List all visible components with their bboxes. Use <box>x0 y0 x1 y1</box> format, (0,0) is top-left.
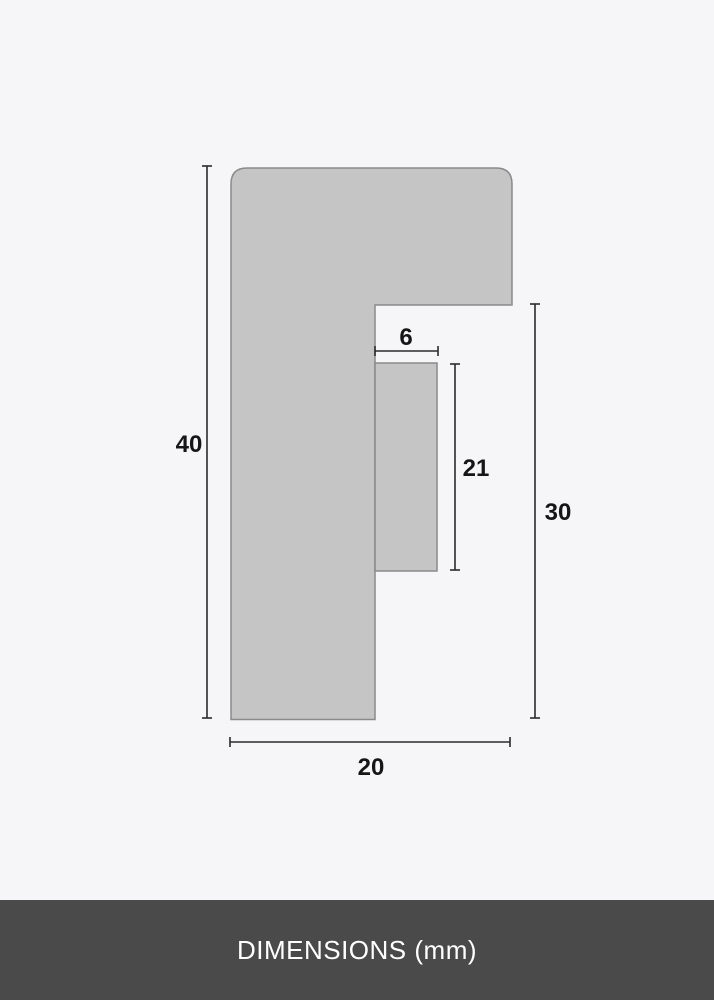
dim-label-inner-height: 30 <box>545 499 572 526</box>
dim-line-height-40 <box>202 166 212 718</box>
dim-label-rabbet-height: 21 <box>463 455 490 482</box>
dimensions-footer: DIMENSIONS (mm) <box>0 900 714 1000</box>
dim-label-height: 40 <box>176 431 203 458</box>
frame-profile-diagram: 40 6 21 30 20 <box>0 0 714 900</box>
dim-label-rabbet-width: 6 <box>399 324 412 351</box>
dim-label-width: 20 <box>358 754 385 781</box>
dim-line-width-20 <box>230 737 510 747</box>
frame-profile-shape <box>231 168 512 720</box>
dim-line-rabbet-height-21 <box>450 364 460 570</box>
dim-line-inner-height-30 <box>530 304 540 718</box>
rabbet-shape <box>375 363 437 571</box>
profile-drawing-canvas: 40 6 21 30 20 <box>0 0 714 900</box>
dimensions-footer-label: DIMENSIONS (mm) <box>237 935 477 966</box>
